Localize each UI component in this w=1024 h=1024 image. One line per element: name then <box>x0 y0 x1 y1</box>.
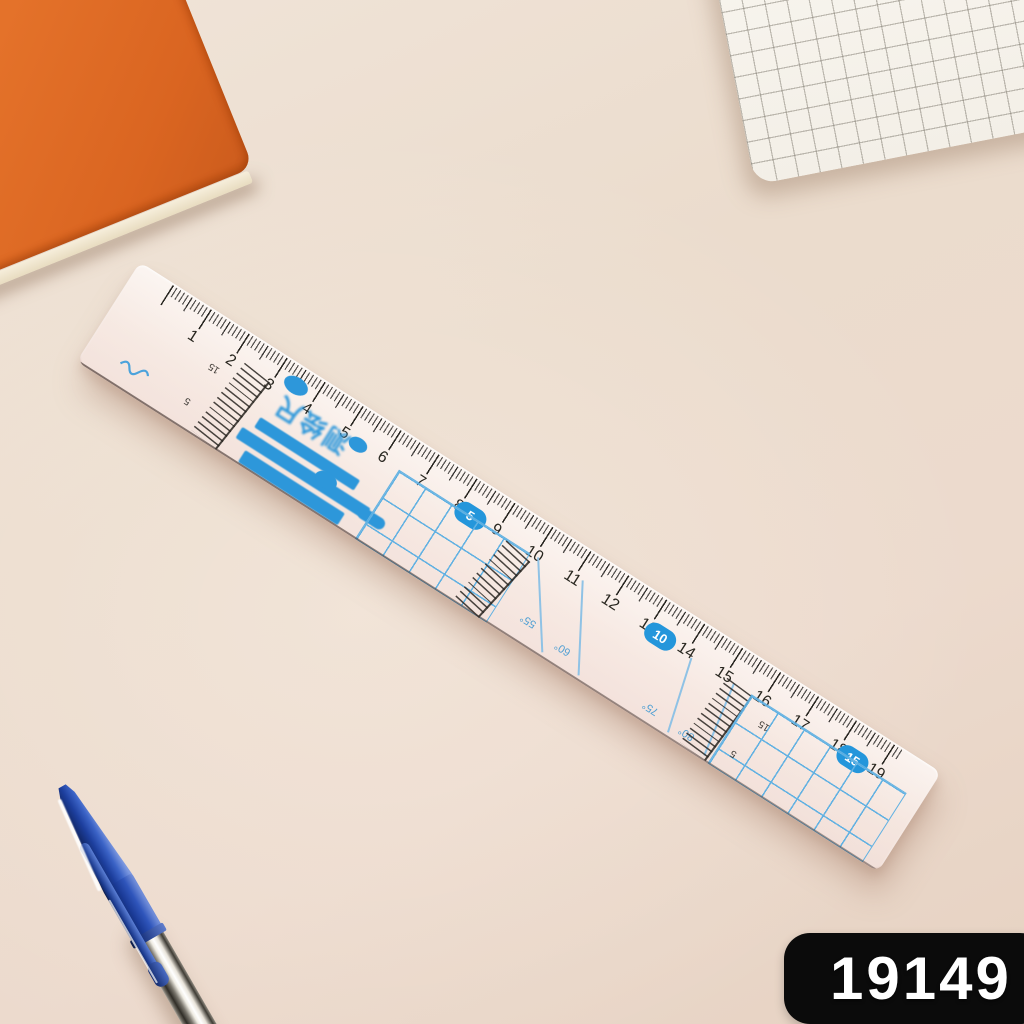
angle-label: 55° <box>518 611 538 630</box>
grid-notepad <box>692 0 1024 185</box>
angle-line-60 <box>578 580 584 675</box>
left-gauge-label: 5 <box>182 395 193 407</box>
product-code-text: 19149 <box>830 944 1012 1013</box>
angle-line-55 <box>537 557 543 652</box>
ruler-bottom-edge <box>77 359 880 872</box>
brand-squiggle-icon <box>116 352 156 387</box>
angle-label: 60° <box>553 639 573 658</box>
product-code-badge: 19149 <box>784 933 1024 1024</box>
desk-scene: 12345678910111213141516171819 5 10 15 测绘… <box>0 0 1024 1024</box>
angle-label: 75° <box>640 699 660 718</box>
ruler-centimeter-ticks <box>160 285 903 770</box>
angle-line-75 <box>667 658 692 733</box>
transparent-ruler: 12345678910111213141516171819 5 10 15 测绘… <box>77 262 942 872</box>
